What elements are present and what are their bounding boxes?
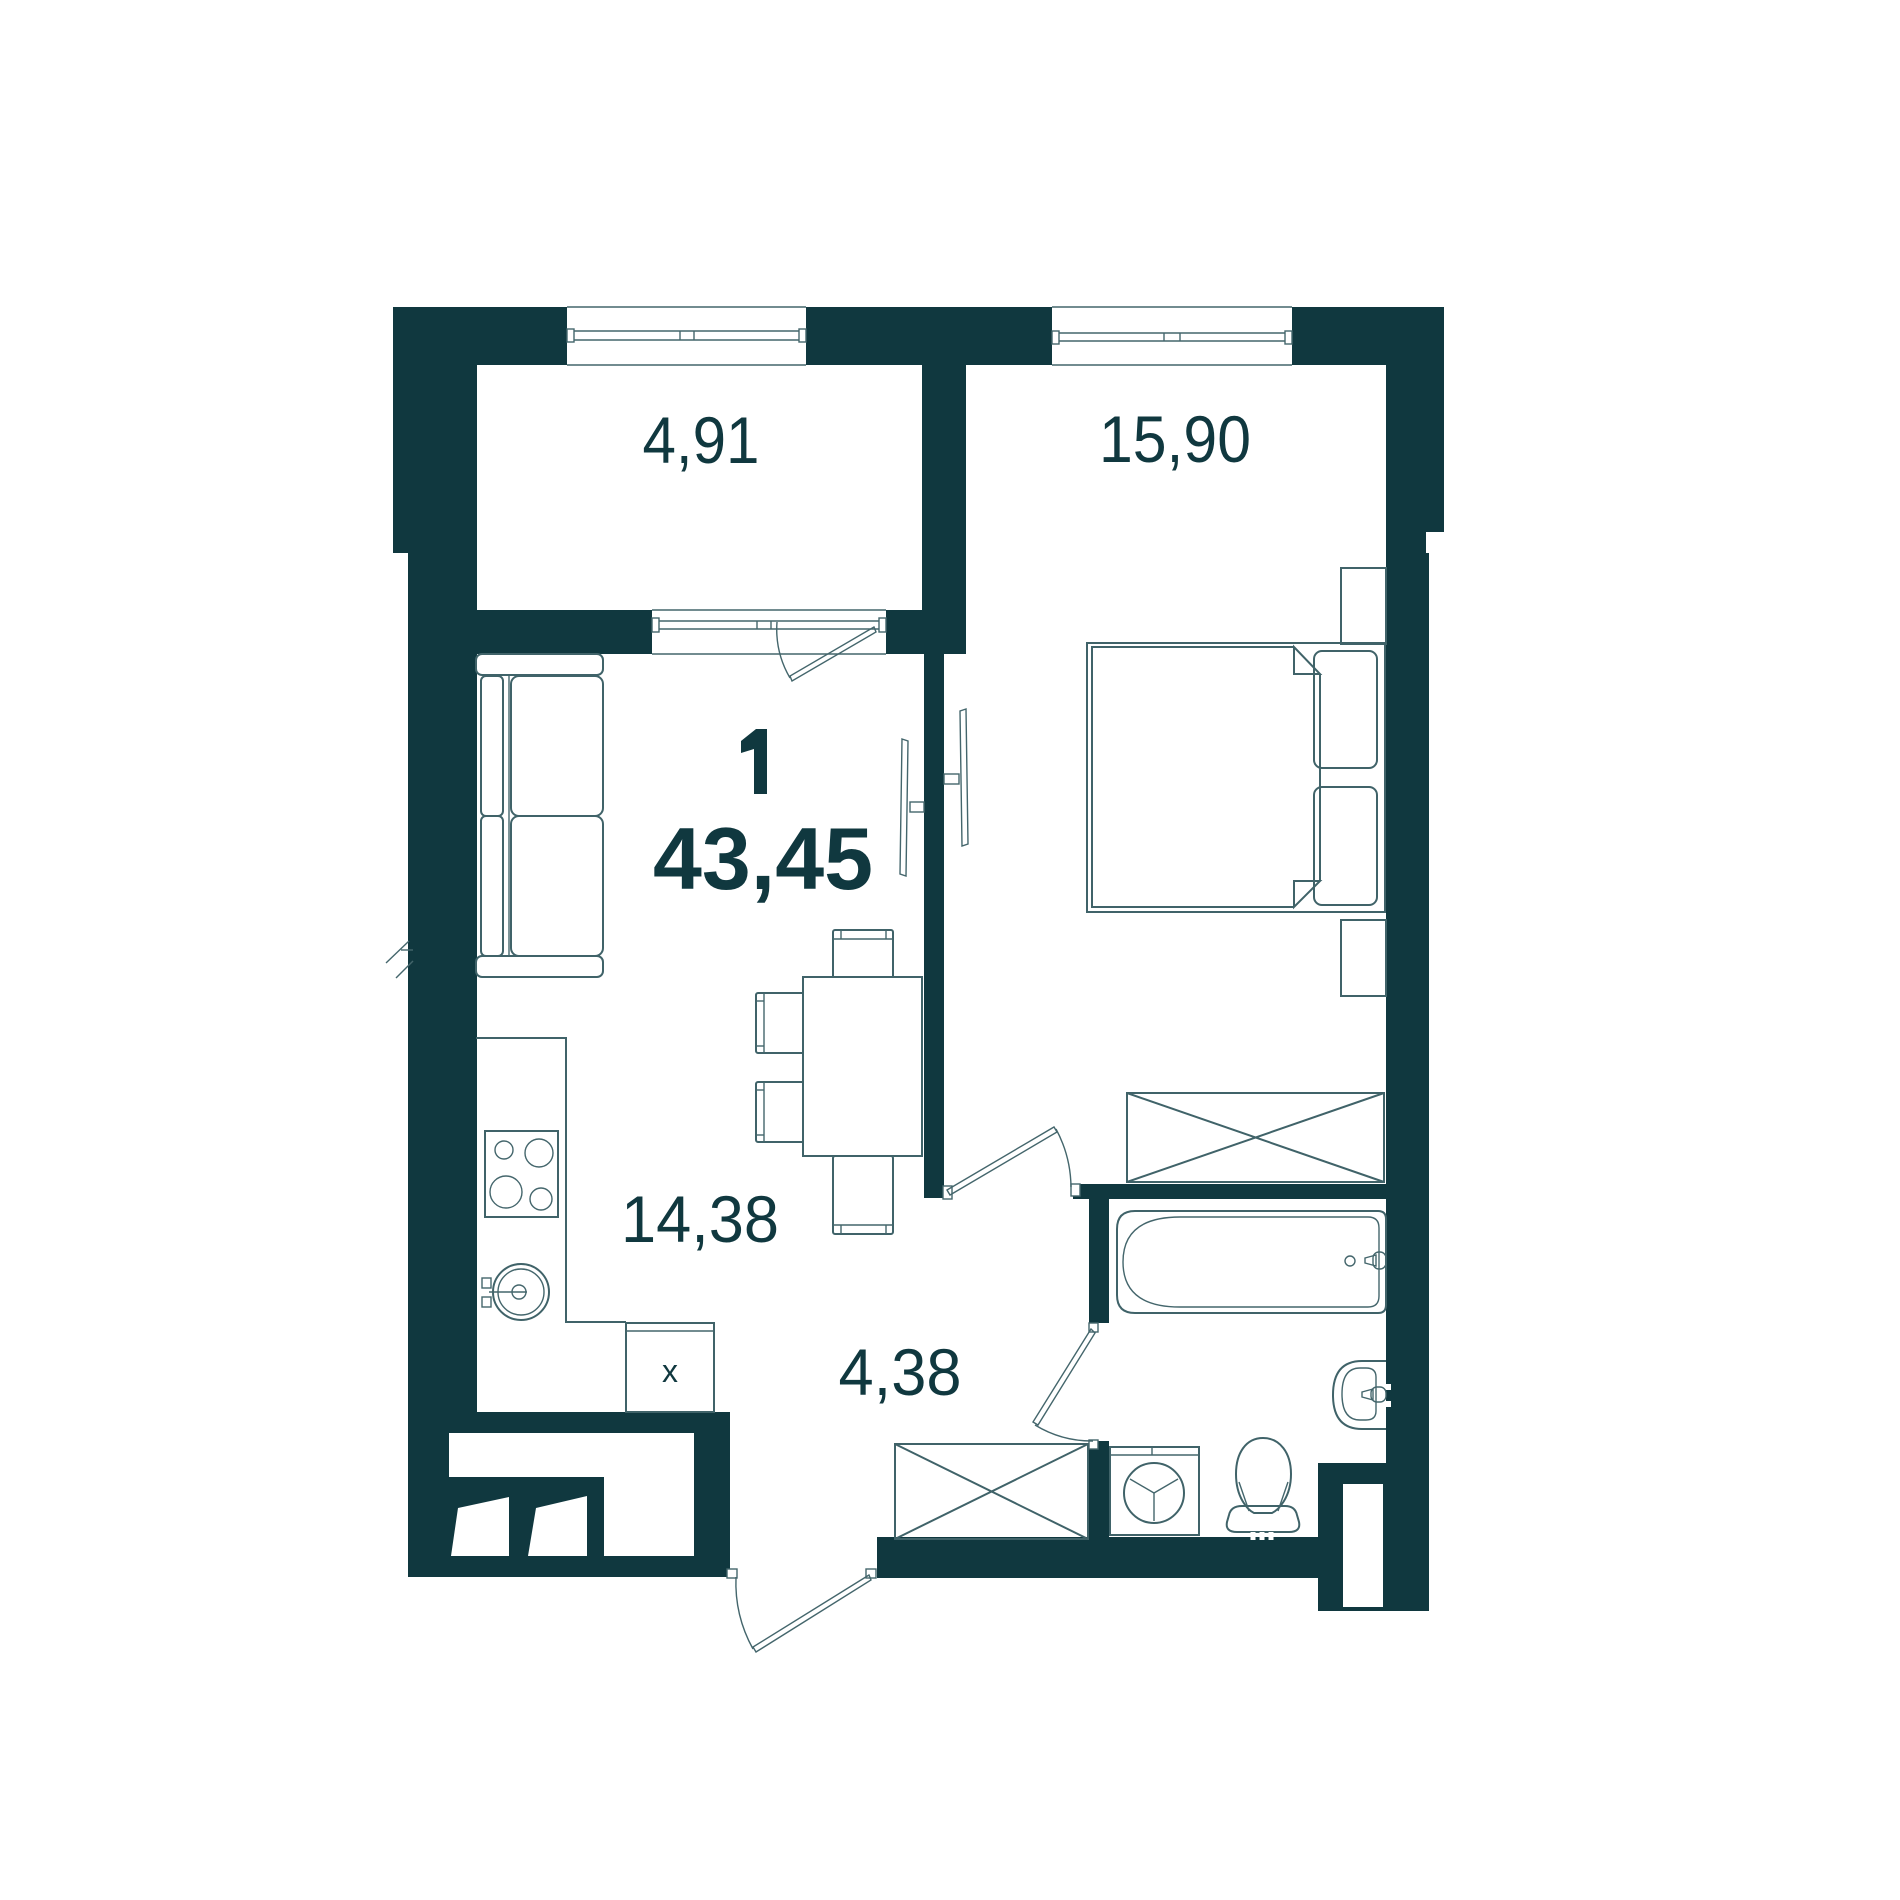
svg-text:43,45: 43,45 xyxy=(653,809,873,908)
svg-text:14,38: 14,38 xyxy=(621,1182,779,1256)
svg-text:x: x xyxy=(662,1353,678,1389)
svg-text:15,90: 15,90 xyxy=(1099,402,1251,476)
svg-text:4,91: 4,91 xyxy=(643,403,760,477)
svg-text:4,38: 4,38 xyxy=(839,1335,962,1409)
